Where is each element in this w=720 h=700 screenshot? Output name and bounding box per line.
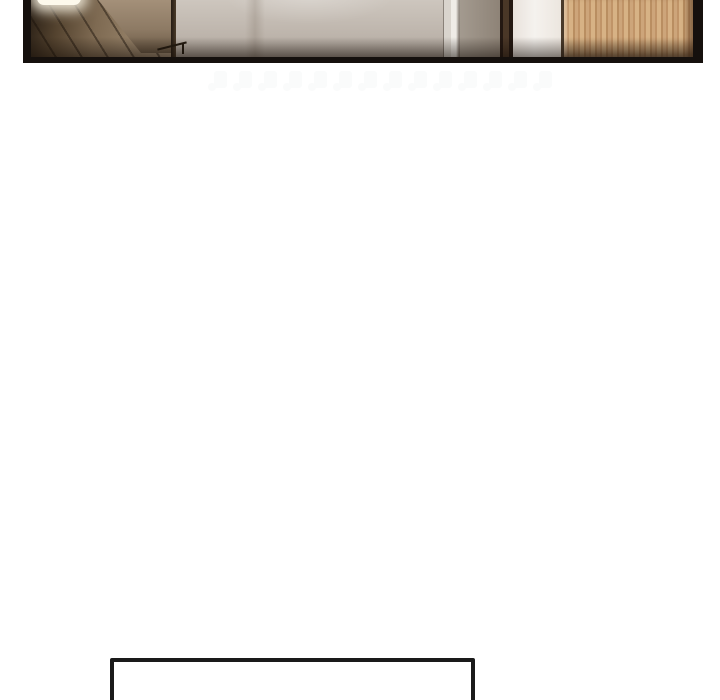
watermark-glyph — [464, 71, 477, 88]
photo-bottom-shadow — [31, 37, 693, 57]
caption-text — [114, 662, 471, 682]
watermark-glyph — [264, 71, 277, 88]
watermark-row — [214, 71, 552, 97]
photo-ceiling-light — [37, 0, 81, 5]
watermark-glyph — [539, 71, 552, 88]
watermark-glyph — [514, 71, 527, 88]
watermark-glyph — [239, 71, 252, 88]
webtoon-page — [0, 0, 720, 700]
caption-box — [110, 658, 475, 700]
comic-panel — [23, 0, 703, 63]
interior-photo — [31, 0, 693, 57]
watermark-glyph — [339, 71, 352, 88]
watermark-glyph — [489, 71, 502, 88]
watermark-glyph — [389, 71, 402, 88]
watermark-glyph — [414, 71, 427, 88]
watermark-glyph — [289, 71, 302, 88]
watermark-glyph — [214, 71, 227, 88]
watermark-glyph — [439, 71, 452, 88]
watermark-glyph — [314, 71, 327, 88]
watermark-glyph — [364, 71, 377, 88]
